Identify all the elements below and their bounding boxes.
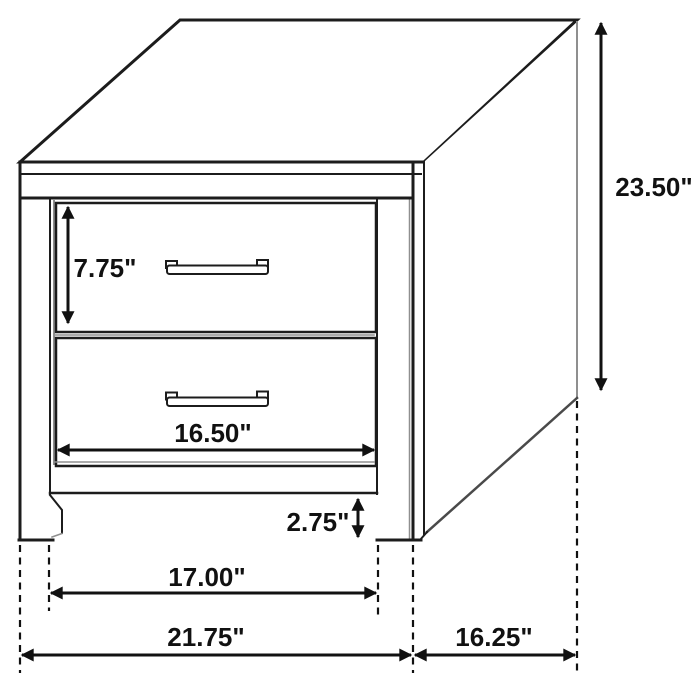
left-rear-leg-edge	[50, 495, 62, 533]
nightstand-dimension-diagram: 7.75" 23.50" 16.50" 2.75" 17.00" 21.75" …	[0, 0, 700, 700]
left-rear-leg-base	[52, 534, 62, 538]
dimension-overall-width: 21.75"	[22, 622, 411, 655]
dimension-floor-clearance: 2.75"	[287, 499, 358, 537]
dim-label-drawer-face-height: 7.75"	[74, 253, 137, 283]
dim-label-overall-width: 21.75"	[167, 622, 244, 652]
dimension-inner-leg-width: 17.00"	[51, 562, 376, 593]
handle-bar	[167, 266, 268, 275]
dim-label-overall-height: 23.50"	[615, 172, 692, 202]
handle-bar	[167, 398, 268, 407]
dimension-overall-height: 23.50"	[601, 23, 693, 390]
dim-label-depth: 16.25"	[455, 622, 532, 652]
dim-label-inner-leg-width: 17.00"	[168, 562, 245, 592]
dim-label-drawer-width: 16.50"	[174, 418, 251, 448]
diagram-canvas: 7.75" 23.50" 16.50" 2.75" 17.00" 21.75" …	[0, 0, 700, 700]
dimension-depth: 16.25"	[415, 622, 575, 655]
dim-label-floor-clearance: 2.75"	[287, 507, 350, 537]
